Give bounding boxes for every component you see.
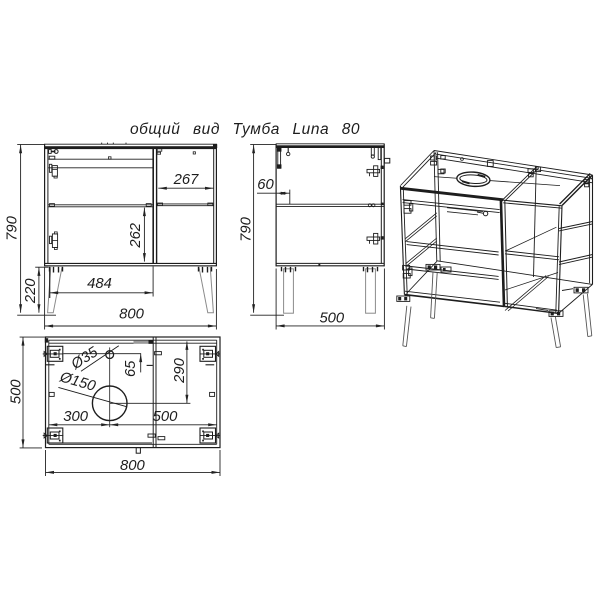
svg-text:300: 300 xyxy=(63,409,88,425)
svg-text:262: 262 xyxy=(128,222,144,248)
svg-text:290: 290 xyxy=(172,357,188,383)
svg-text:267: 267 xyxy=(173,172,199,188)
svg-text:220: 220 xyxy=(23,278,39,304)
svg-text:60: 60 xyxy=(257,177,274,193)
svg-text:800: 800 xyxy=(120,458,145,474)
svg-text:790: 790 xyxy=(5,215,21,240)
svg-text:484: 484 xyxy=(87,276,112,292)
svg-text:790: 790 xyxy=(238,216,254,241)
svg-text:общий вид Тумба Luna 80: общий вид Тумба Luna 80 xyxy=(130,121,360,138)
svg-text:500: 500 xyxy=(153,409,178,425)
svg-text:Ø150: Ø150 xyxy=(57,369,98,395)
svg-text:800: 800 xyxy=(119,307,144,323)
svg-text:65: 65 xyxy=(123,360,139,377)
svg-text:500: 500 xyxy=(9,379,25,404)
svg-text:500: 500 xyxy=(319,310,344,326)
